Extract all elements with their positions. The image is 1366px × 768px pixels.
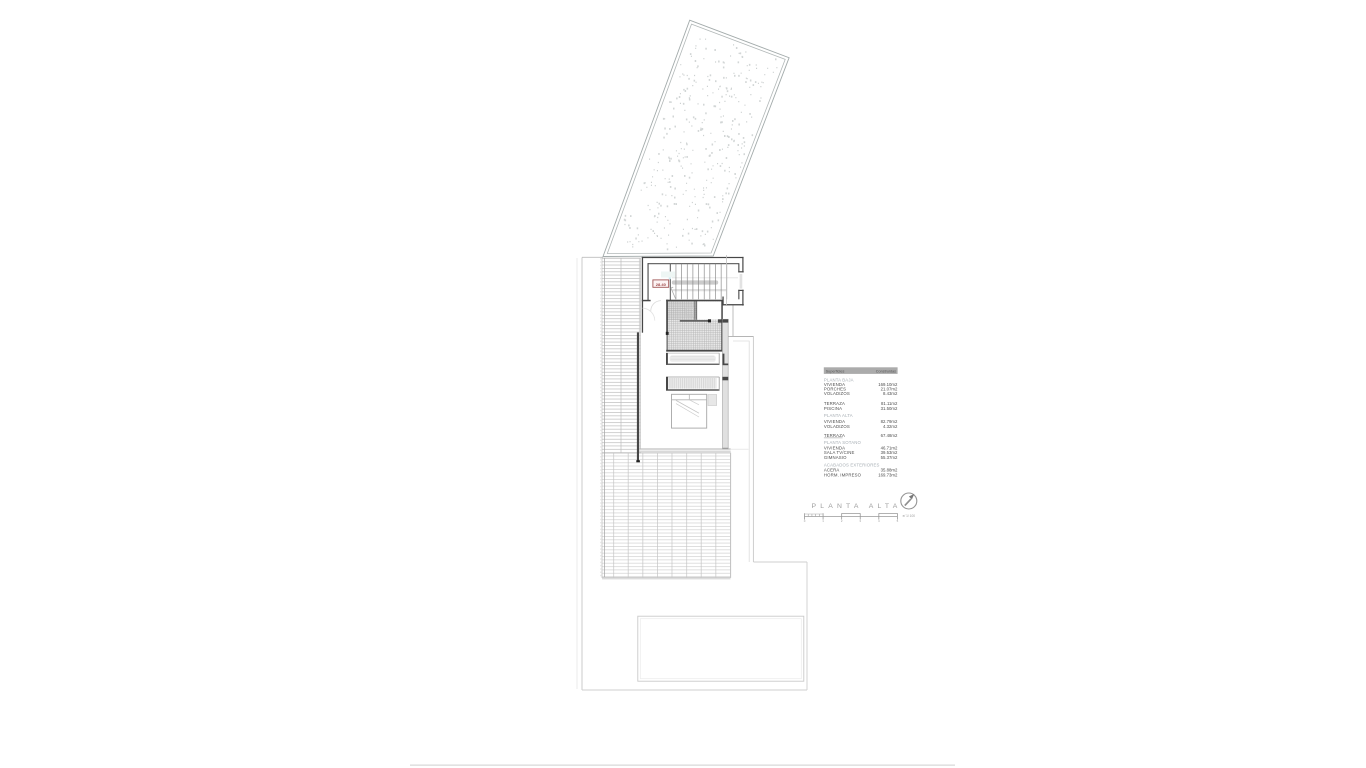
svg-text:PLANTA ALTA: PLANTA ALTA [824, 413, 853, 418]
svg-text:28.40: 28.40 [656, 282, 667, 287]
svg-text:HORM. IMPRESO: HORM. IMPRESO [824, 472, 862, 477]
svg-text:GIMNASIO: GIMNASIO [824, 455, 847, 460]
svg-text:TERRAZA: TERRAZA [824, 433, 845, 438]
svg-text:e/ 1/ 100: e/ 1/ 100 [903, 514, 916, 518]
svg-text:VOLADIZOS: VOLADIZOS [824, 391, 850, 396]
svg-text:169.73m2: 169.73m2 [878, 472, 898, 477]
svg-text:31.50m2: 31.50m2 [881, 406, 898, 411]
svg-text:Construidas: Construidas [876, 370, 896, 374]
svg-text:PLANTA ALTA: PLANTA ALTA [812, 503, 902, 510]
svg-text:Superficies: Superficies [826, 370, 845, 374]
svg-text:67.48m2: 67.48m2 [881, 433, 898, 438]
svg-text:PLANTA SOTANO: PLANTA SOTANO [824, 440, 862, 445]
svg-text:4.32m2: 4.32m2 [883, 424, 898, 429]
svg-text:55.37m2: 55.37m2 [881, 455, 898, 460]
svg-text:8.43m2: 8.43m2 [883, 391, 898, 396]
svg-text:PISCINA: PISCINA [824, 406, 842, 411]
svg-text:VOLADIZOS: VOLADIZOS [824, 424, 850, 429]
